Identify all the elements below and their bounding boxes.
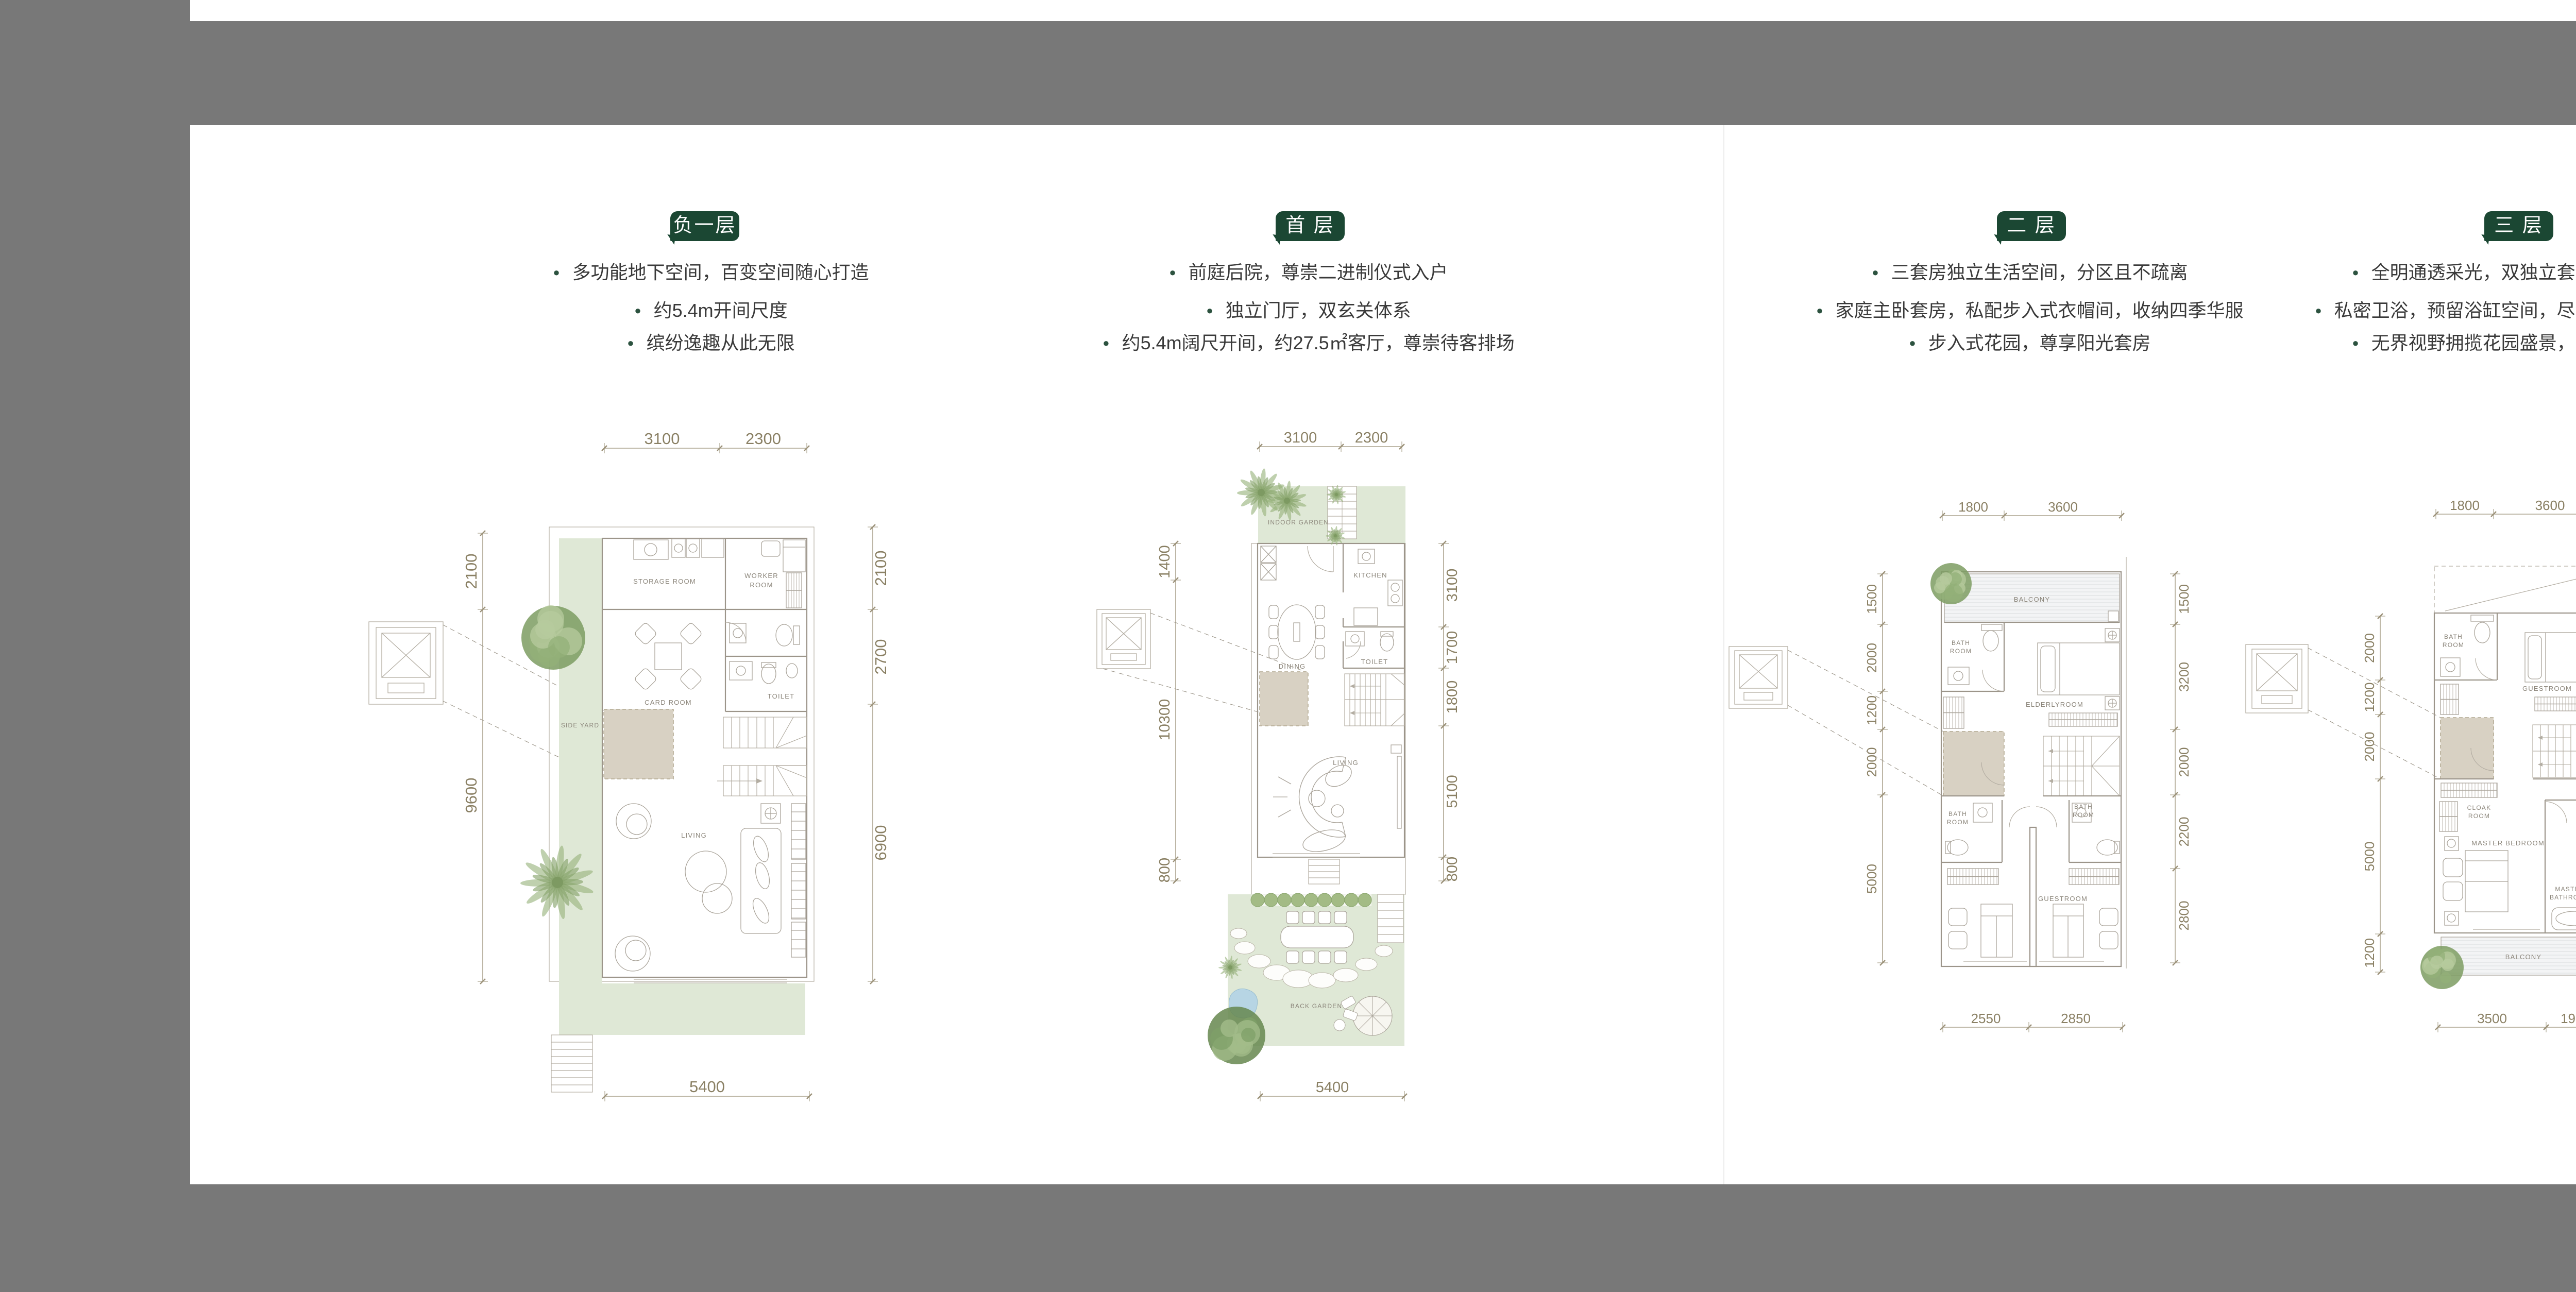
svg-text:5400: 5400 <box>689 1078 725 1096</box>
svg-text:MASTER BEDROOM: MASTER BEDROOM <box>2471 839 2545 847</box>
svg-text:1200: 1200 <box>1864 695 1879 725</box>
svg-text:BATH: BATH <box>1948 810 1967 818</box>
svg-text:1200: 1200 <box>2362 683 2377 712</box>
svg-text:3600: 3600 <box>2535 498 2565 513</box>
svg-text:BATHROOM: BATHROOM <box>2550 894 2576 901</box>
svg-text:KITCHEN: KITCHEN <box>1353 571 1387 579</box>
svg-text:6900: 6900 <box>872 825 890 861</box>
svg-text:1500: 1500 <box>2176 584 2192 614</box>
svg-text:2000: 2000 <box>2362 633 2377 663</box>
svg-text:MASTER: MASTER <box>2555 886 2576 893</box>
svg-text:2000: 2000 <box>1864 643 1879 673</box>
svg-text:2300: 2300 <box>1355 430 1388 446</box>
svg-text:ROOM: ROOM <box>1947 819 1969 826</box>
svg-text:1500: 1500 <box>1864 584 1879 614</box>
svg-text:800: 800 <box>1157 858 1173 882</box>
svg-text:9600: 9600 <box>462 778 480 813</box>
svg-text:LIVING: LIVING <box>1333 759 1359 767</box>
svg-text:BACK GARDEN: BACK GARDEN <box>1291 1002 1343 1010</box>
svg-text:1800: 1800 <box>2450 498 2480 513</box>
svg-text:INDOOR GARDEN: INDOOR GARDEN <box>1268 519 1329 526</box>
svg-text:2000: 2000 <box>2362 732 2377 762</box>
svg-text:2850: 2850 <box>2061 1011 2091 1026</box>
svg-text:SIDE YARD: SIDE YARD <box>561 722 599 729</box>
svg-text:CARD ROOM: CARD ROOM <box>645 699 692 706</box>
svg-text:ELDERLYROOM: ELDERLYROOM <box>2026 701 2083 708</box>
svg-text:GUESTROOM: GUESTROOM <box>2038 895 2088 903</box>
svg-text:3200: 3200 <box>2176 662 2192 692</box>
svg-text:3100: 3100 <box>1444 569 1461 602</box>
svg-text:CLOAK: CLOAK <box>2467 804 2492 811</box>
svg-text:GUESTROOM: GUESTROOM <box>2522 685 2572 692</box>
svg-text:BATH: BATH <box>2074 803 2093 810</box>
svg-text:1400: 1400 <box>1157 545 1173 579</box>
svg-text:3100: 3100 <box>645 430 680 448</box>
svg-text:1900: 1900 <box>2561 1011 2576 1026</box>
svg-text:5000: 5000 <box>2362 842 2377 872</box>
svg-text:5000: 5000 <box>1864 864 1879 894</box>
svg-text:STORAGE ROOM: STORAGE ROOM <box>633 577 696 585</box>
svg-text:2700: 2700 <box>872 639 890 675</box>
svg-text:ROOM: ROOM <box>2443 641 2464 649</box>
svg-text:1700: 1700 <box>1444 631 1461 665</box>
svg-text:3100: 3100 <box>1284 430 1317 446</box>
svg-text:ROOM: ROOM <box>2073 811 2094 819</box>
svg-text:1200: 1200 <box>2362 938 2377 968</box>
svg-text:ROOM: ROOM <box>1950 648 1972 655</box>
svg-text:2550: 2550 <box>1971 1011 2001 1026</box>
svg-text:TOILET: TOILET <box>768 692 794 700</box>
svg-text:5100: 5100 <box>1444 775 1461 808</box>
svg-text:WORKER: WORKER <box>744 572 778 580</box>
svg-text:2000: 2000 <box>1864 747 1879 777</box>
svg-text:800: 800 <box>1444 857 1461 881</box>
svg-text:10300: 10300 <box>1157 699 1173 741</box>
svg-text:2100: 2100 <box>462 554 480 589</box>
svg-text:5400: 5400 <box>1316 1079 1349 1096</box>
svg-text:1800: 1800 <box>1958 499 1988 515</box>
svg-text:2300: 2300 <box>745 430 781 448</box>
svg-text:3600: 3600 <box>2048 499 2078 515</box>
svg-text:2000: 2000 <box>2176 747 2192 777</box>
svg-text:BATH: BATH <box>2444 633 2463 640</box>
svg-text:LIVING: LIVING <box>681 831 707 839</box>
svg-text:DINING: DINING <box>1279 662 1306 670</box>
svg-text:2800: 2800 <box>2176 901 2192 931</box>
svg-text:BATH: BATH <box>1952 639 1970 647</box>
svg-text:BALCONY: BALCONY <box>2505 953 2542 961</box>
svg-text:ROOM: ROOM <box>2468 812 2490 820</box>
svg-text:BALCONY: BALCONY <box>2014 596 2050 603</box>
svg-text:2200: 2200 <box>2176 817 2192 847</box>
svg-text:ROOM: ROOM <box>750 581 773 589</box>
svg-text:TOILET: TOILET <box>1361 658 1388 666</box>
svg-text:3500: 3500 <box>2477 1011 2507 1026</box>
svg-text:1800: 1800 <box>1444 681 1461 714</box>
svg-text:2100: 2100 <box>872 551 890 586</box>
